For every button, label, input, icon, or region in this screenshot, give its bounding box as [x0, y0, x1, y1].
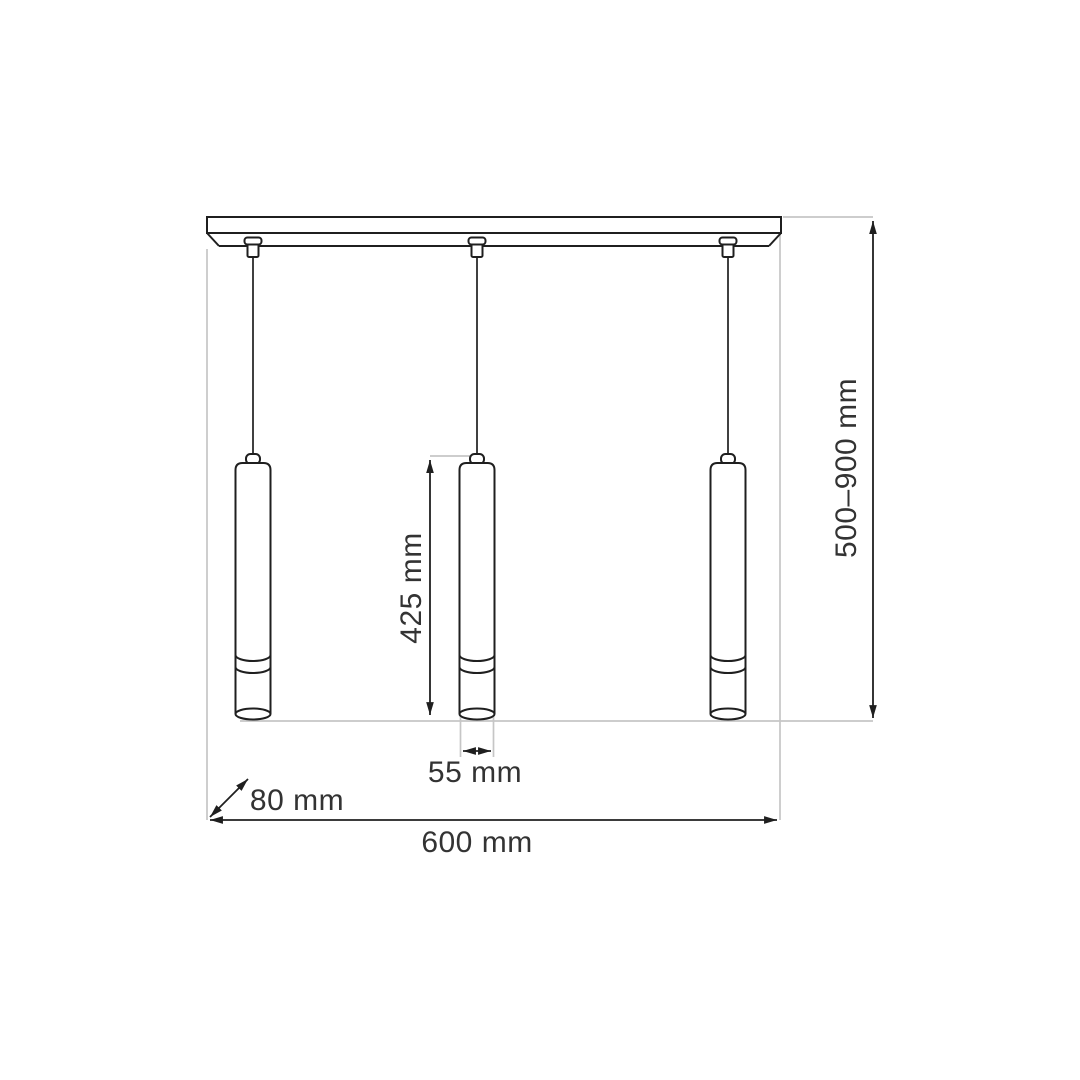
shade-body — [236, 463, 271, 714]
dimension-label-shade-diameter: 55 mm — [428, 756, 522, 789]
cord-grips — [245, 238, 737, 258]
dimension-width: 600 mm — [210, 820, 777, 859]
dimension-depth: 80 mm — [210, 779, 344, 817]
cord-grip-body — [723, 244, 734, 257]
dimension-label-height-range: 500–900 mm — [830, 378, 863, 558]
dimension-label-width: 600 mm — [421, 826, 532, 859]
dimension-line-depth — [210, 779, 248, 817]
dimension-label-shade-length: 425 mm — [395, 532, 428, 643]
dimension-drawing-page: 600 mm 80 mm 500–900 mm 425 mm 55 mm — [0, 0, 1080, 1080]
dimension-shade-length: 425 mm — [395, 460, 430, 715]
cord-grip-body — [472, 244, 483, 257]
shade-body — [711, 463, 746, 714]
dimension-label-depth: 80 mm — [250, 784, 344, 817]
canopy-front-face — [207, 217, 781, 233]
ceiling-canopy — [207, 217, 781, 246]
extension-lines — [207, 217, 873, 820]
cord-grip-left — [245, 238, 262, 258]
dimension-height-range: 500–900 mm — [830, 221, 873, 718]
cord-grip-flange — [720, 238, 737, 245]
cord-grip-right — [720, 238, 737, 258]
suspension-cords — [253, 257, 728, 455]
pendant-shade-right — [711, 454, 746, 720]
shade-bottom-rim — [460, 709, 495, 720]
shade-bottom-rim — [711, 709, 746, 720]
cord-grip-flange — [469, 238, 486, 245]
cord-grip-body — [248, 244, 259, 257]
pendant-shade-left — [236, 454, 271, 720]
canopy-left-edge — [207, 233, 219, 246]
cord-grip-flange — [245, 238, 262, 245]
pendant-lamp-dimension-diagram: 600 mm 80 mm 500–900 mm 425 mm 55 mm — [0, 0, 1080, 1080]
dimension-shade-diameter: 55 mm — [428, 751, 522, 789]
shade-body — [460, 463, 495, 714]
shade-bottom-rim — [236, 709, 271, 720]
pendant-shade-center — [460, 454, 495, 720]
cord-grip-center — [469, 238, 486, 258]
